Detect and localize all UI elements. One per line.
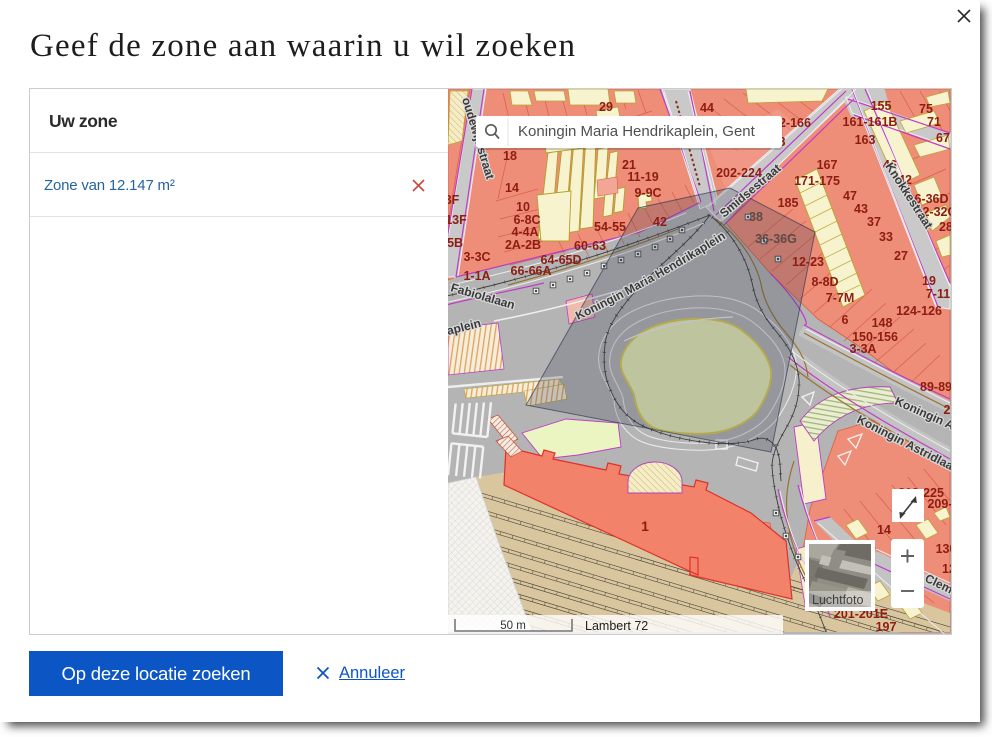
svg-text:36-36G: 36-36G — [755, 232, 797, 246]
svg-text:47: 47 — [843, 189, 857, 203]
svg-text:155: 155 — [871, 99, 892, 113]
svg-text:3-3C: 3-3C — [463, 250, 490, 264]
svg-text:50 m: 50 m — [500, 620, 526, 632]
svg-text:13F: 13F — [448, 213, 467, 227]
svg-text:148: 148 — [872, 316, 893, 330]
svg-text:Lambert 72: Lambert 72 — [585, 619, 648, 633]
svg-text:14: 14 — [877, 523, 891, 537]
svg-text:171-175: 171-175 — [794, 174, 840, 188]
svg-text:11-19: 11-19 — [627, 170, 658, 184]
svg-text:43: 43 — [854, 202, 868, 216]
svg-text:60-63: 60-63 — [574, 239, 606, 253]
svg-text:185: 185 — [778, 196, 799, 210]
svg-text:10: 10 — [516, 200, 530, 214]
svg-text:4-4A: 4-4A — [511, 225, 538, 239]
svg-text:8-8D: 8-8D — [811, 275, 838, 289]
svg-text:130: 130 — [936, 542, 951, 556]
svg-text:124-126: 124-126 — [896, 304, 942, 318]
svg-text:1-1A: 1-1A — [463, 269, 490, 283]
svg-text:12: 12 — [942, 562, 951, 576]
svg-text:18: 18 — [503, 149, 517, 163]
svg-text:3F: 3F — [448, 193, 460, 207]
svg-text:89-89: 89-89 — [920, 380, 951, 394]
svg-text:27: 27 — [894, 249, 908, 263]
svg-text:Luchtfoto: Luchtfoto — [812, 593, 863, 607]
svg-text:44: 44 — [700, 101, 714, 115]
svg-text:197: 197 — [876, 620, 897, 634]
svg-text:7-7M: 7-7M — [826, 291, 854, 305]
svg-text:66-66A: 66-66A — [511, 264, 552, 278]
svg-text:209-: 209- — [927, 497, 951, 511]
svg-text:67: 67 — [936, 131, 950, 145]
svg-text:38: 38 — [749, 210, 763, 224]
svg-text:9-9C: 9-9C — [634, 186, 661, 200]
svg-text:1: 1 — [641, 518, 649, 534]
svg-text:71: 71 — [927, 115, 941, 129]
svg-text:167: 167 — [817, 158, 838, 172]
svg-text:2A-2B: 2A-2B — [505, 238, 541, 252]
svg-text:19: 19 — [922, 274, 936, 288]
svg-text:42: 42 — [653, 215, 667, 229]
svg-text:161-161B: 161-161B — [843, 115, 898, 129]
svg-text:75: 75 — [919, 102, 933, 116]
svg-text:54-55: 54-55 — [594, 220, 626, 234]
svg-text:3-3A: 3-3A — [849, 342, 876, 356]
svg-text:7-11: 7-11 — [926, 287, 950, 301]
svg-text:6: 6 — [842, 313, 849, 327]
svg-text:Koningin Maria Hendrikaplein,: Koningin Maria Hendrikaplein, Gent — [518, 123, 756, 140]
svg-text:29: 29 — [599, 100, 613, 114]
svg-text:14: 14 — [505, 181, 519, 195]
svg-text:28: 28 — [939, 220, 951, 234]
svg-text:12-23: 12-23 — [792, 255, 824, 269]
svg-text:163: 163 — [855, 133, 876, 147]
svg-text:37: 37 — [867, 215, 881, 229]
svg-text:33: 33 — [879, 230, 893, 244]
svg-text:-5B: -5B — [448, 236, 463, 250]
